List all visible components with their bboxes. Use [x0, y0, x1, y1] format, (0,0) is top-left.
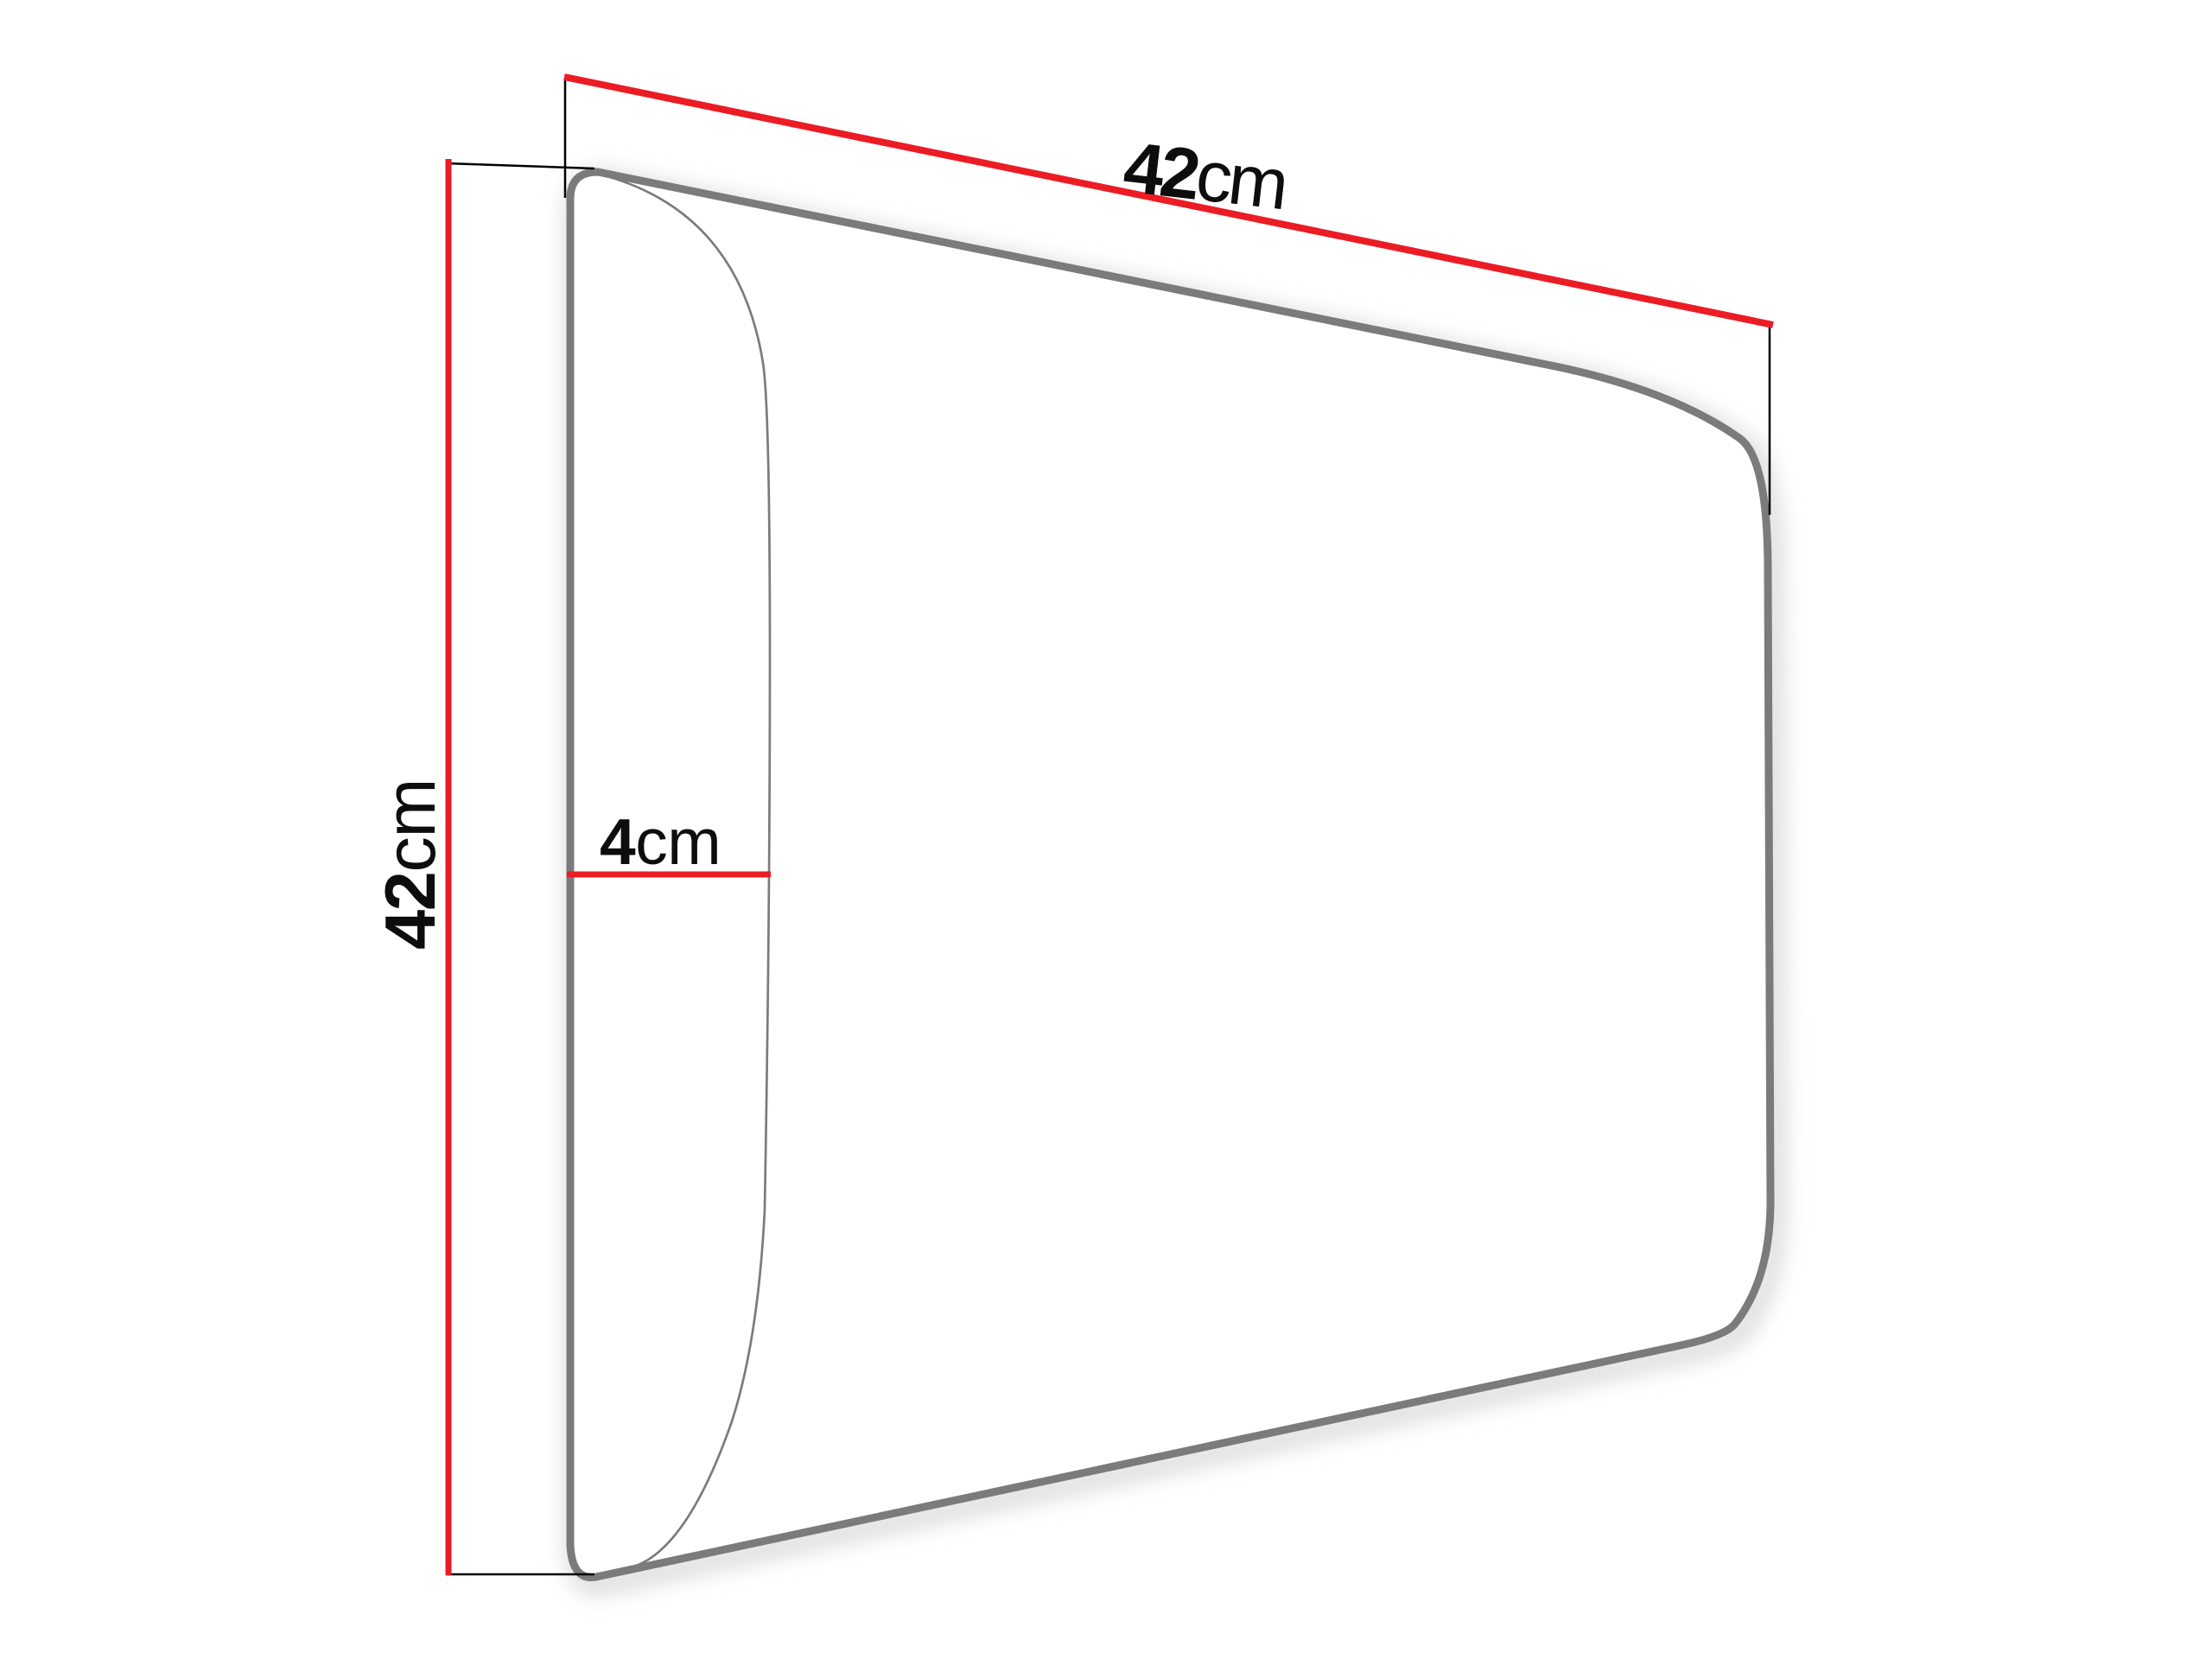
svg-text:42cm: 42cm [370, 779, 450, 950]
svg-text:4cm: 4cm [600, 805, 721, 878]
